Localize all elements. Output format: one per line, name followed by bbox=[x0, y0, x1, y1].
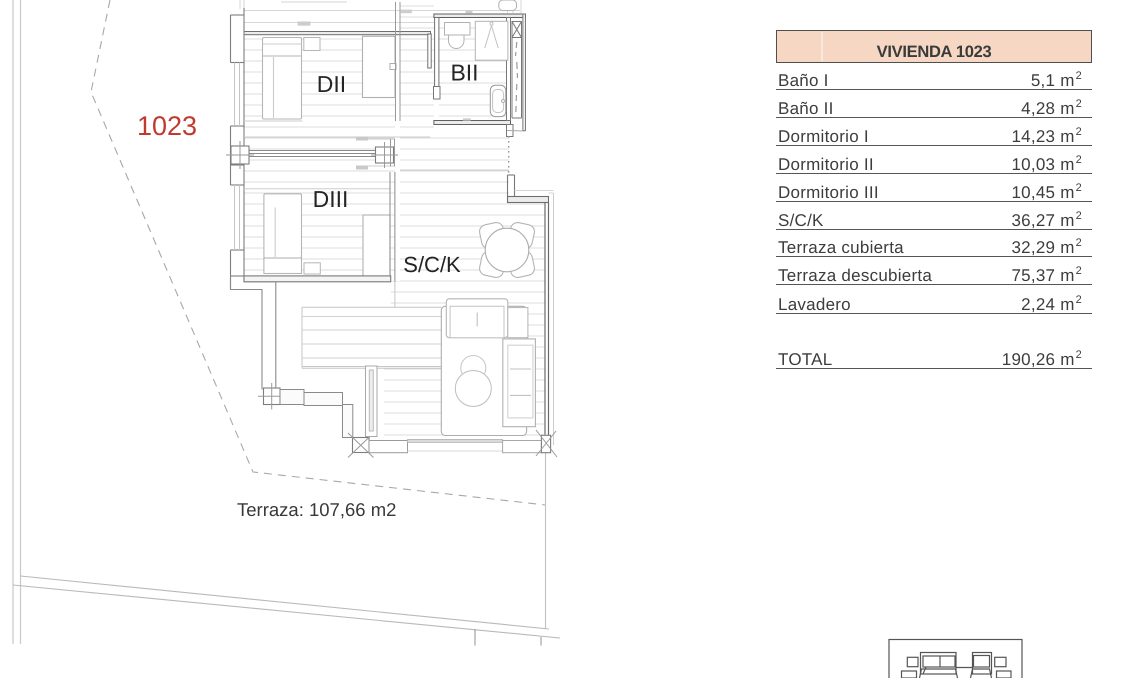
svg-text:S/C/K: S/C/K bbox=[403, 252, 461, 277]
svg-text:Terraza: 107,66 m2: Terraza: 107,66 m2 bbox=[237, 499, 396, 520]
svg-text:DII: DII bbox=[317, 71, 346, 97]
svg-text:1023: 1023 bbox=[137, 111, 197, 141]
svg-text:DIII: DIII bbox=[313, 186, 349, 212]
svg-text:BII: BII bbox=[450, 60, 478, 86]
